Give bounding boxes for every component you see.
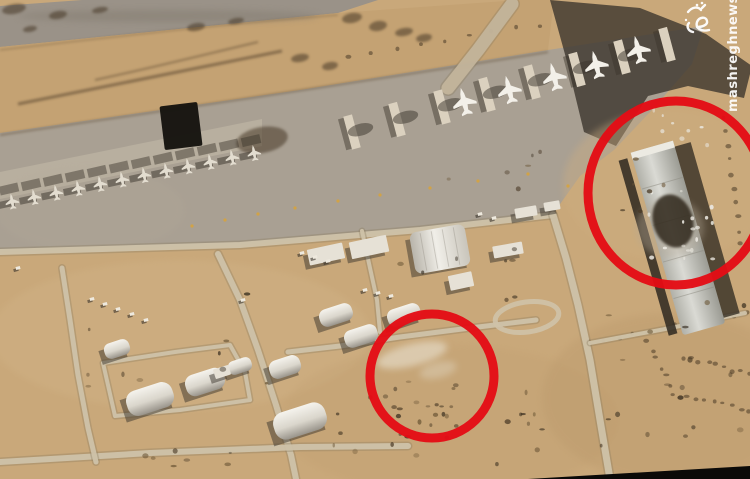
scrub-dot — [453, 383, 459, 387]
debris — [711, 221, 714, 225]
scrub-dot — [85, 385, 91, 388]
berm-dot — [538, 24, 542, 27]
debris — [663, 247, 667, 250]
debris — [695, 226, 700, 230]
scrub-dot — [88, 328, 91, 331]
apron-marking — [476, 179, 479, 182]
scrub-dot — [737, 427, 744, 432]
apron-marking — [378, 193, 381, 196]
debris — [686, 249, 691, 251]
scrub-dot — [406, 380, 412, 383]
scrub-dot — [171, 465, 177, 467]
scrub-dot — [680, 385, 685, 390]
scrub-dot — [421, 271, 424, 275]
scrub-dot — [414, 400, 420, 404]
apron-marking — [526, 172, 529, 175]
berm-dot — [694, 397, 699, 401]
debris — [686, 129, 690, 133]
debris — [695, 237, 698, 242]
scrub-dot — [600, 444, 603, 448]
airbase-satellite-image: mashreghnews.ir — [0, 0, 750, 479]
scrub-dot — [338, 431, 343, 435]
scrub-dot — [383, 394, 388, 398]
scrub-dot — [620, 209, 625, 211]
scrub-dot — [705, 300, 710, 305]
apron-marking — [256, 212, 259, 215]
scrub-dot — [333, 443, 335, 447]
debris — [690, 227, 695, 230]
scrub-dot — [435, 403, 439, 406]
scrub-dot — [539, 428, 545, 430]
berm-dot — [737, 241, 742, 245]
scrub-dot — [691, 425, 695, 429]
scrub-dot — [397, 407, 403, 410]
scrub-dot — [504, 170, 509, 174]
scrub-dot — [413, 453, 419, 457]
debris — [705, 216, 708, 220]
scrub-dot — [647, 330, 653, 334]
scrub-dot — [687, 357, 692, 363]
berm-dot — [345, 55, 351, 59]
scrub-dot — [433, 413, 438, 417]
scrub-dot — [445, 414, 449, 419]
scrub-dot — [447, 177, 451, 180]
scrub-dot — [449, 405, 453, 408]
berm-dot — [739, 408, 745, 411]
scrub-dot — [223, 340, 229, 343]
debris — [680, 190, 683, 192]
scrub-dot — [683, 434, 688, 437]
apron-marking — [293, 206, 296, 209]
scrub-dot — [533, 412, 536, 416]
scrub-dot — [393, 387, 397, 392]
debris — [660, 129, 664, 133]
berm-dot — [663, 373, 669, 376]
apron-marking — [566, 184, 569, 187]
scrub-dot — [265, 382, 268, 384]
apron-marking — [336, 199, 339, 202]
scrub-dot — [525, 165, 531, 167]
scrub-dot — [426, 405, 431, 407]
dark-hangar — [159, 102, 202, 150]
berm-dot — [737, 231, 741, 234]
scrub-dot — [527, 422, 530, 426]
berm-dot — [467, 34, 472, 36]
berm-dot — [681, 356, 685, 360]
scrub-dot — [142, 453, 148, 458]
debris — [710, 257, 715, 260]
satellite-photo: mashreghnews.ir — [0, 0, 750, 479]
scrub-dot — [219, 367, 226, 372]
debris — [700, 126, 704, 128]
berm-dot — [722, 365, 726, 367]
berm-dot — [695, 360, 700, 365]
scrub-dot — [454, 424, 459, 428]
berm-dot — [738, 369, 743, 372]
berm-dot — [684, 395, 690, 398]
scrub-dot — [525, 390, 528, 396]
berm-dot — [725, 144, 731, 148]
scrub-dot — [136, 378, 143, 382]
scrub-dot — [86, 373, 89, 377]
scrub-dot — [396, 414, 401, 418]
scrub-dot — [615, 412, 620, 417]
berm-dot — [707, 360, 712, 364]
berm-dot — [735, 214, 741, 218]
scrub-dot — [535, 447, 540, 452]
berm-dot — [651, 350, 656, 354]
scrub-dot — [336, 413, 339, 416]
scrub-dot — [509, 259, 516, 262]
apron-marking — [223, 218, 226, 221]
debris — [690, 216, 694, 220]
debris — [710, 205, 714, 210]
scrub-dot — [455, 256, 458, 261]
scrub-dot — [442, 412, 446, 417]
berm-dot — [731, 187, 737, 191]
scrub-dot — [519, 413, 522, 417]
scrub-dot — [439, 405, 444, 407]
scrub-dot — [352, 449, 357, 454]
scrub-dot — [451, 387, 455, 390]
scrub-dot — [682, 326, 689, 329]
apron-marking — [428, 186, 431, 189]
scrub-dot — [677, 395, 683, 399]
scrub-dot — [742, 303, 747, 308]
berm-dot — [702, 398, 706, 401]
scrub-dot — [229, 452, 232, 454]
berm-dot — [514, 25, 518, 29]
debris — [648, 213, 651, 217]
scrub-dot — [504, 298, 508, 302]
scrub-dot — [418, 419, 422, 424]
scrub-dot — [645, 432, 649, 437]
scrub-dot — [664, 383, 671, 386]
debris — [681, 245, 685, 248]
berm-dot — [728, 173, 734, 178]
scrub-dot — [390, 442, 394, 447]
scrub-dot — [512, 295, 517, 298]
scrub-dot — [397, 262, 404, 266]
scrub-dot — [638, 209, 643, 213]
berm-dot — [730, 403, 735, 406]
scrub-dot — [728, 372, 732, 377]
scrub-dot — [632, 183, 635, 186]
scrub-dot — [244, 292, 250, 295]
scrub-dot — [647, 189, 653, 193]
berm-dot — [733, 200, 738, 205]
scrub-dot — [184, 458, 191, 461]
berm-dot — [443, 40, 446, 44]
tonal-patch — [0, 168, 185, 252]
scrub-dot — [606, 418, 611, 420]
scrub-dot — [662, 183, 666, 188]
scrub-dot — [121, 372, 124, 377]
scrub-dot — [218, 351, 221, 355]
debris — [679, 136, 684, 141]
scrub-dot — [391, 405, 397, 409]
scrub-dot — [516, 186, 521, 191]
debris — [682, 220, 684, 224]
berm-dot — [419, 42, 423, 46]
berm-dot — [369, 51, 373, 55]
debris — [662, 114, 664, 117]
berm-dot — [652, 355, 657, 358]
scrub-dot — [173, 448, 178, 454]
scrub-dot — [620, 359, 626, 361]
scrub-dot — [224, 463, 231, 467]
scrub-dot — [633, 157, 639, 160]
debris — [671, 122, 674, 124]
berm-dot — [660, 367, 663, 371]
scrub-dot — [504, 259, 507, 262]
scrub-dot — [606, 314, 612, 316]
scrub-dot — [495, 462, 499, 466]
scrub-dot — [538, 150, 542, 154]
scrub-dot — [531, 154, 534, 158]
berm-dot — [713, 399, 717, 403]
berm-dot — [720, 402, 724, 405]
debris — [649, 256, 654, 260]
berm-dot — [643, 339, 649, 343]
apron-marking — [190, 224, 193, 227]
berm-dot — [713, 362, 718, 366]
debris — [683, 257, 685, 260]
scrub-dot — [151, 456, 156, 460]
scrub-dot — [429, 423, 432, 427]
watermark-url: mashreghnews.ir — [726, 0, 741, 112]
berm-dot — [723, 129, 727, 133]
scrub-dot — [512, 247, 517, 251]
debris — [705, 143, 709, 147]
berm-dot — [671, 393, 675, 396]
scrub-dot — [505, 419, 511, 424]
berm-dot — [395, 47, 399, 52]
berm-dot — [728, 157, 731, 160]
